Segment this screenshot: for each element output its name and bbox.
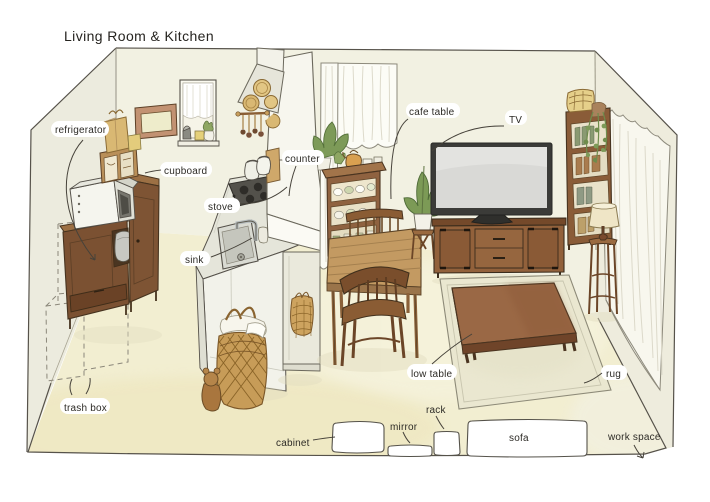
svg-text:mirror: mirror (390, 422, 418, 433)
svg-text:stove: stove (208, 202, 233, 213)
svg-text:trash box: trash box (64, 403, 107, 414)
svg-text:cafe table: cafe table (409, 107, 455, 118)
svg-text:sofa: sofa (509, 433, 529, 444)
svg-text:rack: rack (426, 405, 446, 416)
svg-text:rug: rug (606, 369, 621, 380)
svg-text:cabinet: cabinet (276, 438, 310, 449)
svg-text:counter: counter (285, 154, 320, 165)
svg-text:refrigerator: refrigerator (55, 125, 107, 136)
svg-text:TV: TV (509, 115, 522, 126)
svg-text:Living Room & Kitchen: Living Room & Kitchen (64, 28, 214, 44)
svg-text:cupboard: cupboard (164, 166, 207, 177)
svg-text:low table: low table (411, 369, 453, 380)
svg-text:work space: work space (607, 432, 661, 443)
svg-text:sink: sink (185, 255, 204, 266)
